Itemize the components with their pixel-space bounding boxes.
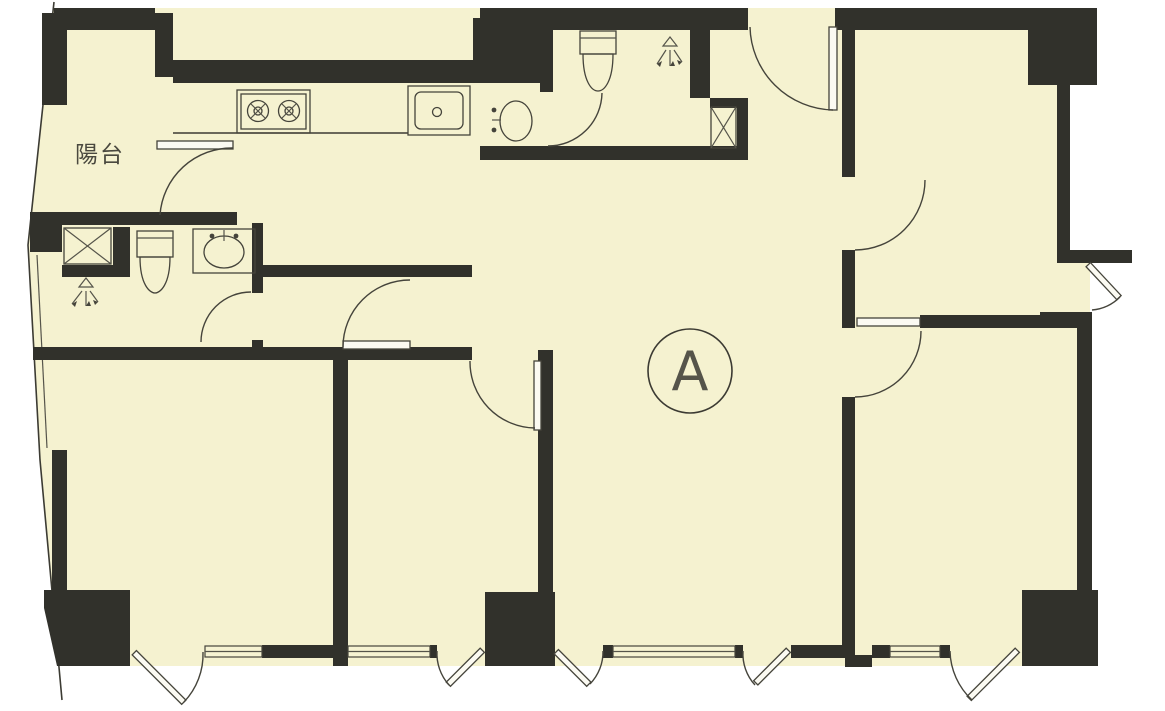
top-entry-door-leaf bbox=[829, 27, 837, 110]
window bbox=[890, 646, 940, 657]
balcony-door-leaf bbox=[157, 141, 233, 149]
corridor-door-leaf bbox=[343, 341, 410, 349]
bedroom-bottomright-door-leaf bbox=[857, 318, 920, 326]
bedroom-middle-door-leaf bbox=[534, 361, 541, 430]
window bbox=[348, 646, 430, 657]
floor-plan-drawing: 陽台 A bbox=[0, 0, 1165, 711]
entry-door-leaf bbox=[1086, 263, 1121, 300]
floor-plan-page: 陽台 A bbox=[0, 0, 1165, 711]
floor-area bbox=[28, 8, 1132, 666]
window bbox=[205, 646, 262, 657]
entry-door-right bbox=[1086, 263, 1121, 310]
window bbox=[613, 646, 735, 657]
unit-label: A bbox=[672, 340, 709, 403]
balcony-label: 陽台 bbox=[75, 142, 125, 168]
